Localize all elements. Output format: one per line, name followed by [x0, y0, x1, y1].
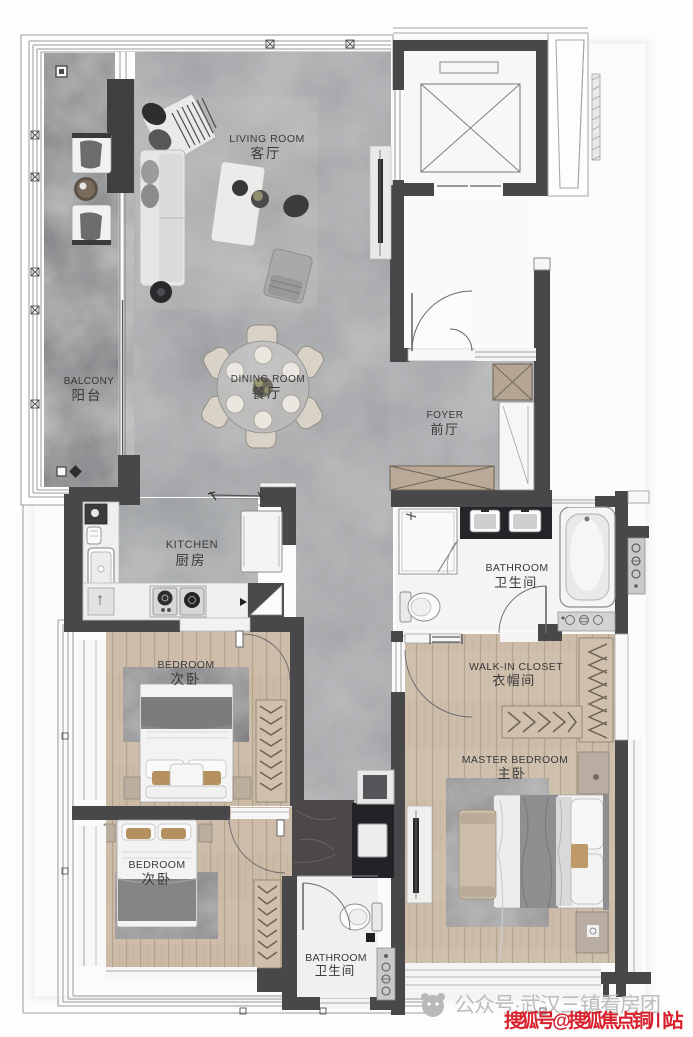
svg-text:卫生间: 卫生间 — [315, 964, 356, 978]
svg-text:厨房: 厨房 — [176, 553, 207, 568]
svg-text:次卧: 次卧 — [142, 872, 173, 887]
svg-text:LIVING ROOM: LIVING ROOM — [229, 133, 305, 145]
svg-text:WALK-IN CLOSET: WALK-IN CLOSET — [469, 661, 563, 673]
svg-text:BATHROOM: BATHROOM — [305, 952, 367, 964]
svg-text:DINING ROOM: DINING ROOM — [231, 374, 305, 385]
svg-text:BATHROOM: BATHROOM — [485, 562, 548, 574]
svg-text:卫生间: 卫生间 — [494, 575, 538, 590]
svg-text:衣帽间: 衣帽间 — [492, 673, 536, 688]
svg-text:BALCONY: BALCONY — [64, 376, 115, 387]
svg-text:前厅: 前厅 — [430, 422, 459, 437]
svg-text:搜狐号@搜狐焦点铜川站: 搜狐号@搜狐焦点铜川站 — [504, 1009, 684, 1032]
svg-text:次卧: 次卧 — [171, 672, 202, 687]
svg-text:BEDROOM: BEDROOM — [157, 659, 214, 671]
svg-text:客厅: 客厅 — [251, 145, 282, 161]
svg-text:FOYER: FOYER — [427, 410, 464, 421]
svg-text:主卧: 主卧 — [497, 766, 526, 781]
svg-text:KITCHEN: KITCHEN — [166, 539, 218, 551]
svg-text:阳台: 阳台 — [72, 388, 103, 403]
svg-text:餐厅: 餐厅 — [252, 386, 283, 401]
svg-text:BEDROOM: BEDROOM — [128, 859, 185, 871]
svg-text:MASTER BEDROOM: MASTER BEDROOM — [462, 754, 569, 766]
